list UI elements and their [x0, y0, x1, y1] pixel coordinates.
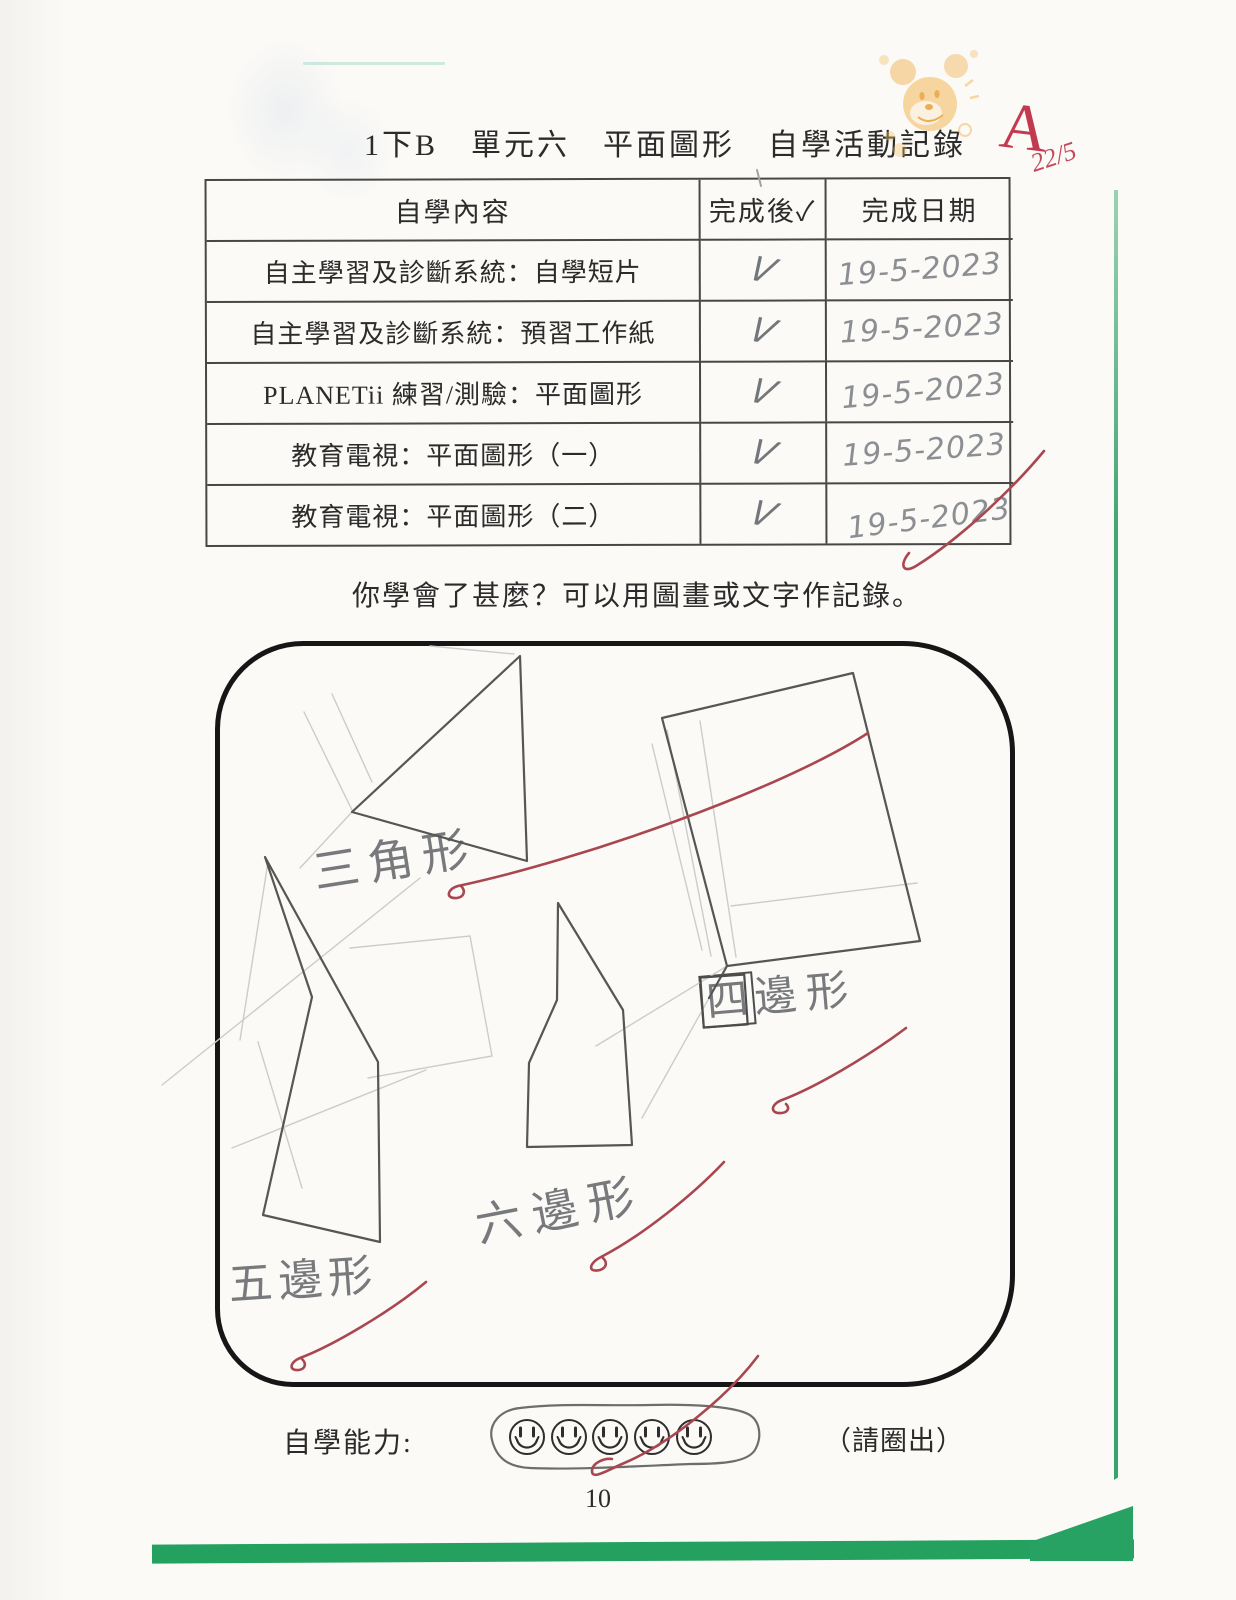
table-row-date-cell: 19-5-2023: [827, 482, 1013, 543]
grade-date: 22/5: [1027, 136, 1080, 178]
handwritten-checkmark: V: [744, 432, 782, 474]
scan-artifact-line: [303, 62, 445, 65]
table-row-checkbox: V: [701, 238, 827, 299]
table-row-content: 自主學習及診斷系統：預習工作紙: [207, 300, 701, 362]
ink-bleed-smudge: [225, 35, 345, 185]
table-header-date: 完成日期: [827, 179, 1013, 238]
circle-hint: （請圈出）: [824, 1419, 964, 1458]
table-row-content: PLANETii 練習/測驗：平面圖形: [207, 361, 701, 423]
handwritten-checkmark: V: [744, 249, 782, 291]
handwritten-date: 19-5-2023: [840, 367, 1007, 417]
smiley-face-icon: [677, 1420, 711, 1454]
table-row-date-cell: 19-5-2023: [827, 299, 1013, 360]
pencil-circle-around-smileys: [491, 1405, 759, 1469]
handwritten-checkmark: V: [744, 371, 782, 413]
table-row-checkbox: V: [701, 482, 827, 543]
table-row-date-cell: 19-5-2023: [827, 360, 1013, 421]
page-title: 1下B 單元六 平面圖形 自學活動記錄: [364, 120, 966, 164]
table-row-content: 自主學習及診斷系統：自學短片: [207, 239, 701, 301]
worksheet-page: 1下B 單元六 平面圖形 自學活動記錄 自學內容 完成後✓ 完成日期 自主學習及…: [0, 0, 1236, 1600]
ability-label: 自學能力:: [283, 1421, 413, 1461]
activity-table: 自學內容 完成後✓ 完成日期 自主學習及診斷系統：自學短片 V 19-5-202…: [205, 177, 1012, 547]
handwritten-checkmark: V: [744, 493, 782, 535]
handwritten-date: 19-5-2023: [841, 427, 1007, 474]
handwritten-date: 19-5-2023: [845, 491, 1012, 546]
boxed-character: 四: [698, 971, 756, 1029]
table-row-checkbox: V: [701, 360, 827, 421]
smiley-face-icon: [552, 1420, 586, 1454]
table-header-content: 自學內容: [207, 180, 701, 240]
handwritten-checkmark: V: [744, 310, 782, 352]
smiley-face-icon: [593, 1420, 627, 1454]
table-header-check: 完成後✓: [701, 179, 827, 238]
handwritten-date: 19-5-2023: [837, 246, 1003, 293]
handwritten-date: 19-5-2023: [839, 307, 1005, 351]
table-row-date-cell: 19-5-2023: [827, 421, 1013, 482]
table-row-content: 教育電視：平面圖形（一）: [207, 422, 701, 484]
table-row-checkbox: V: [701, 299, 827, 360]
page-number: 10: [585, 1484, 611, 1514]
table-row-content: 教育電視：平面圖形（二）: [207, 483, 701, 545]
grade-mark: A: [996, 88, 1053, 166]
smiley-face-icon: [635, 1420, 669, 1454]
label-quad-rest: 邊形: [752, 964, 860, 1022]
table-row-checkbox: V: [701, 421, 827, 482]
drawing-prompt: 你學會了甚麼？可以用圖畫或文字作記錄。: [352, 574, 922, 614]
book-edge-bottom: [152, 1539, 1134, 1563]
table-row-date-cell: 19-5-2023: [827, 238, 1013, 299]
label-pentagon: 五邊形: [226, 1239, 380, 1313]
page-curl: [1000, 1470, 1130, 1540]
book-edge-right: [1114, 190, 1118, 1510]
smiley-face-icon: [510, 1420, 544, 1454]
smiley-row: [491, 1405, 759, 1469]
